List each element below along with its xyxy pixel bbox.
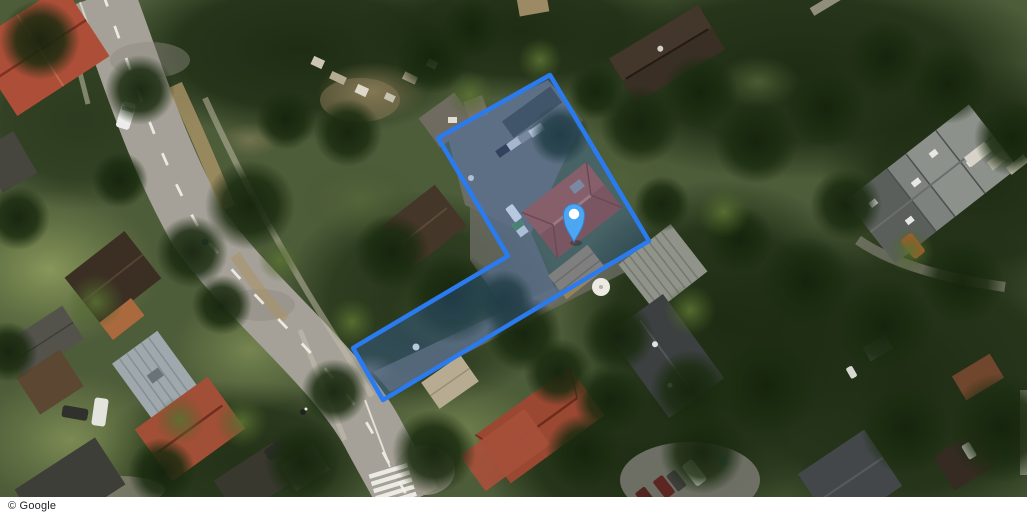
pin-center-dot [569,209,579,219]
google-attribution: © Google [8,500,56,512]
attribution-bar: © Google [0,497,1027,515]
satellite-map-view[interactable]: © Google [0,0,1027,515]
satellite-imagery[interactable] [0,0,1027,497]
